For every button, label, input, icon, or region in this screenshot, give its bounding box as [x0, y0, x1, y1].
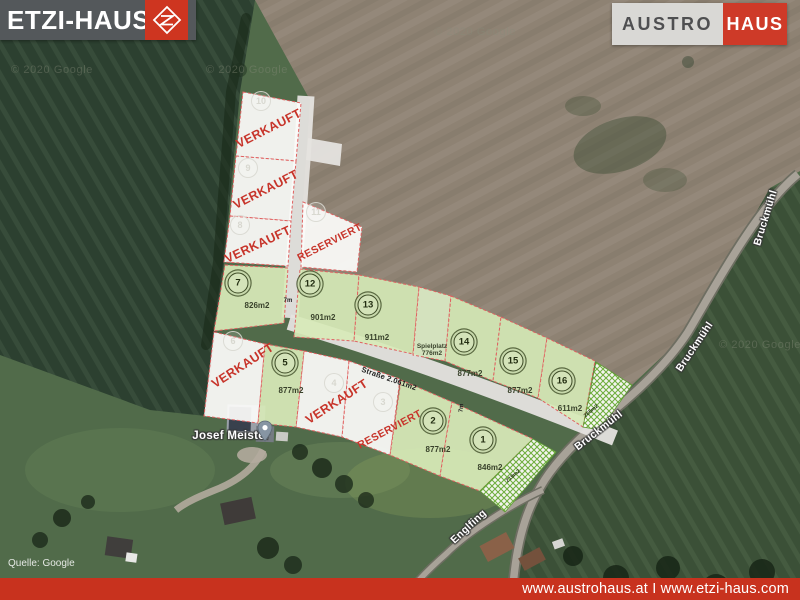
plot-polygon-7 [214, 265, 288, 331]
plot-area-5: 877m2 [279, 387, 304, 395]
etzi-logo-mark [145, 0, 188, 40]
map-source-credit: Quelle: Google [8, 558, 75, 569]
plot-marker-9: 9 [238, 158, 258, 178]
plot-marker-3: 3 [373, 392, 393, 412]
google-watermark: © 2020 Google [11, 65, 93, 77]
dimension-label-7m: 7m [284, 298, 293, 304]
etzi-house-z-icon [152, 5, 182, 35]
plot-marker-5: 5 [275, 353, 296, 374]
plot-marker-2: 2 [423, 411, 444, 432]
playground-label: Spielplatz 776m2 [417, 344, 447, 358]
playground-area: 776m2 [417, 351, 447, 358]
plot-marker-11: 11 [306, 202, 326, 222]
dimension-label-7m: 7m [458, 403, 465, 412]
plot-marker-7: 7 [228, 273, 249, 294]
plot-marker-1: 1 [473, 430, 494, 451]
austrohaus-logo-right: HAUS [723, 3, 787, 45]
google-watermark: © 2020 Google [719, 340, 800, 352]
plot-marker-12: 12 [300, 274, 321, 295]
plot-map-flyer: © 2020 Google © 2020 Google © 2020 Googl… [0, 0, 800, 600]
plot-area-13: 911m2 [365, 334, 389, 342]
plot-marker-14: 14 [454, 332, 475, 353]
plot-area-16: 611m2 [558, 405, 582, 413]
google-watermark: © 2020 Google [206, 65, 288, 77]
plot-marker-10: 10 [251, 91, 271, 111]
footer-bar: www.austrohaus.at I www.etzi-haus.com [0, 578, 800, 600]
plot-area-12: 901m2 [311, 314, 336, 322]
etzi-haus-logo-text: ETZI-HAUS [0, 5, 150, 36]
plot-marker-16: 16 [552, 371, 573, 392]
plot-area-1: 846m2 [478, 464, 503, 472]
footer-urls: www.austrohaus.at I www.etzi-haus.com [522, 581, 800, 597]
plot-area-2: 877m2 [426, 446, 451, 454]
plot-marker-13: 13 [358, 295, 379, 316]
satellite-map [0, 0, 800, 600]
austrohaus-logo: AUSTRO HAUS [612, 3, 787, 45]
map-pin-icon [257, 420, 273, 442]
google-watermark: © 2020 Google [434, 27, 516, 39]
austrohaus-logo-left: AUSTRO [612, 3, 723, 45]
plot-area-7: 826m2 [245, 302, 270, 310]
plot-marker-6: 6 [223, 331, 243, 351]
plot-area-14: 877m2 [458, 370, 483, 378]
etzi-banner-tail [188, 0, 196, 40]
plot-marker-8: 8 [230, 215, 250, 235]
plot-area-15: 877m2 [508, 387, 533, 395]
plot-marker-15: 15 [503, 351, 524, 372]
